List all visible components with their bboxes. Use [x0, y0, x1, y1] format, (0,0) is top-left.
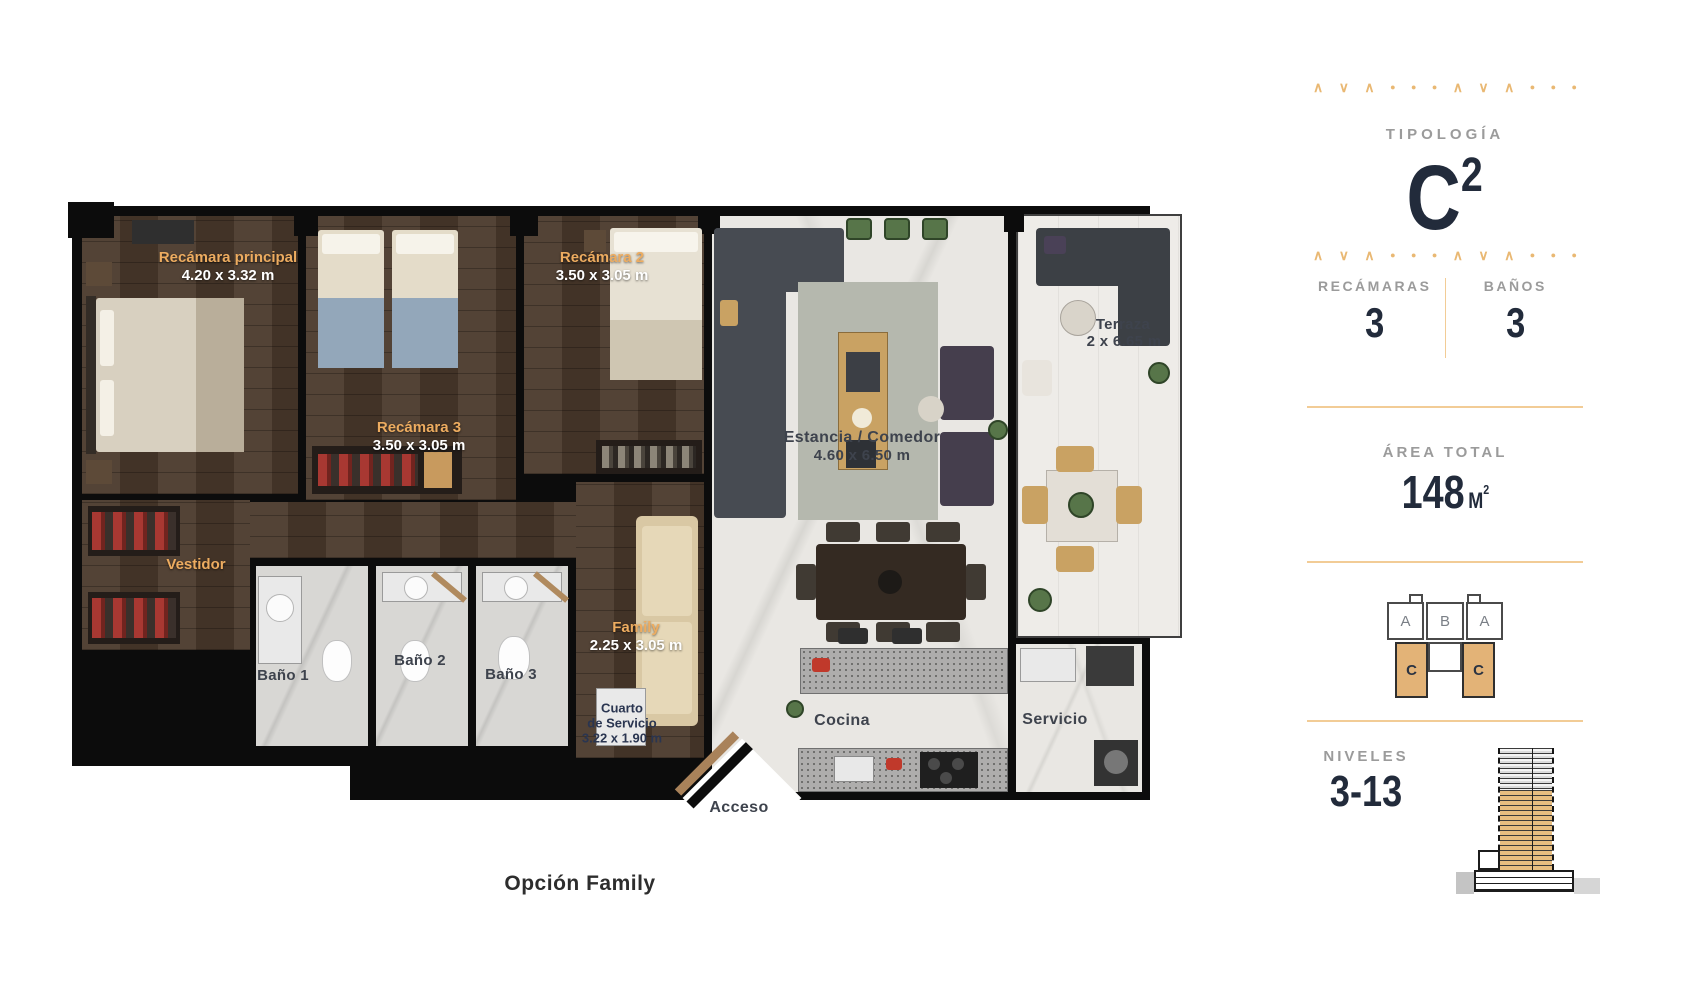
ornament-chevron: ∧ [1453, 80, 1463, 94]
bar-stool [838, 628, 868, 644]
ornament-dot: ● [1530, 248, 1535, 262]
sink [504, 576, 528, 600]
area-label: ÁREA TOTAL [1305, 444, 1585, 461]
label-bedroom-2-dims: 3.50 x 3.05 m [556, 267, 649, 285]
dining-chair [796, 564, 816, 600]
ornament-row: ∧∨∧●●●∧∨∧●●● [1313, 248, 1577, 262]
ornament-chevron: ∧ [1504, 80, 1514, 94]
tipologia-letter: C [1407, 147, 1461, 249]
area-value: 148 M2 [1305, 470, 1585, 514]
stat-label: BAÑOS [1446, 278, 1586, 294]
washer-door [1104, 750, 1128, 774]
room-dims: 4.60 x 6.50 m [814, 447, 910, 464]
stat-value: 3 [1305, 302, 1445, 344]
label-acceso: Acceso [709, 799, 768, 817]
patio-chair [1022, 486, 1048, 524]
table-bowl [852, 408, 872, 428]
tipologia-label: TIPOLOGÍA [1305, 126, 1585, 143]
room-dims: 2 x 6.65 m [1087, 333, 1162, 350]
throw-pillow [720, 300, 738, 326]
room-name: Recámara principal [159, 249, 297, 266]
divider [1307, 561, 1583, 563]
plant [922, 218, 948, 240]
room-dims: 3.50 x 3.05 m [373, 437, 466, 454]
plant [988, 420, 1008, 440]
room-name: Baño 1 [257, 667, 309, 684]
label-bedroom-3: Recámara 3 [377, 419, 461, 437]
room-name: Recámara 2 [560, 249, 644, 266]
keyplan-unit-a1: A [1387, 602, 1424, 640]
label-master-bedroom-dims: 4.20 x 3.32 m [182, 267, 275, 285]
keyplan-unit-b: B [1426, 602, 1464, 640]
burner [928, 758, 940, 770]
divider [1307, 406, 1583, 408]
wardrobe-clothes [92, 598, 176, 638]
ornament-chevron: ∨ [1478, 80, 1488, 94]
plant [1148, 362, 1170, 384]
ornament-dot: ● [1572, 80, 1577, 94]
accent-chair [940, 346, 994, 420]
outdoor-chair [1022, 360, 1052, 396]
label-bath-2: Baño 2 [394, 652, 446, 670]
keyplan-unit-c1: C [1395, 642, 1428, 698]
unit-letter: A [1400, 613, 1410, 630]
pillow [322, 234, 380, 254]
bed-throw [196, 298, 244, 452]
room-name: Family [612, 619, 660, 636]
building-illustration [1452, 744, 1602, 900]
patio-chair [1056, 546, 1094, 572]
label-terraza: Terraza [1096, 316, 1150, 334]
unit-letter: C [1406, 662, 1417, 679]
toilet [322, 640, 352, 682]
room-dims: 4.20 x 3.32 m [182, 267, 275, 284]
label-cocina: Cocina [814, 712, 870, 730]
stat-label: RECÁMARAS [1305, 278, 1445, 294]
area-number: 148 [1401, 466, 1464, 518]
table-tray [846, 352, 880, 392]
tipologia-value: C2 [1305, 148, 1585, 238]
unit-letter: A [1479, 613, 1489, 630]
closet-shoes [602, 446, 696, 468]
cooking-pot [812, 658, 830, 672]
pillow [100, 310, 114, 366]
label-vestidor: Vestidor [166, 556, 225, 574]
ornament-dot: ● [1411, 80, 1416, 94]
divider [1307, 720, 1583, 722]
ornament-dot: ● [1551, 248, 1556, 262]
plant [884, 218, 910, 240]
plant [846, 218, 872, 240]
label-servicio: Servicio [1022, 711, 1087, 729]
bar-stool [892, 628, 922, 644]
sofa-cushion [642, 526, 692, 616]
wall-column [68, 202, 114, 238]
dresser [132, 220, 194, 244]
ornament-chevron: ∨ [1478, 248, 1488, 262]
ornament-chevron: ∧ [1504, 248, 1514, 262]
stats-row: RECÁMARAS 3 BAÑOS 3 [1305, 278, 1585, 358]
label-terraza-dims: 2 x 6.65 m [1087, 333, 1162, 351]
ornament-chevron: ∧ [1364, 80, 1374, 94]
keyplan-unit-a2: A [1466, 602, 1503, 640]
throw-pillow [1044, 236, 1066, 254]
ornament-dot: ● [1530, 80, 1535, 94]
ornament-chevron: ∧ [1313, 80, 1323, 94]
ornament-chevron: ∧ [1313, 248, 1323, 262]
side-table [918, 396, 944, 422]
ornament-dot: ● [1411, 248, 1416, 262]
keyplan-unit-c2: C [1462, 642, 1495, 698]
headboard [86, 296, 96, 454]
wardrobe-clothes [92, 512, 176, 550]
kitchen-sink [834, 756, 874, 782]
room-name: Baño 3 [485, 666, 537, 683]
closet-clothes [318, 454, 418, 486]
ornament-dot: ● [1432, 248, 1437, 262]
room-name-line2: de Servicio [582, 716, 662, 731]
plant [1028, 588, 1052, 612]
room-dims: 2.25 x 3.05 m [590, 637, 683, 654]
stat-recamaras: RECÁMARAS 3 [1305, 278, 1446, 358]
food-plate [886, 758, 902, 770]
room-name-line1: Cuarto [582, 701, 662, 716]
niveles-label: NIVELES [1305, 748, 1427, 765]
nightstand [86, 460, 112, 484]
pillow [396, 234, 454, 254]
room-name: Baño 2 [394, 652, 446, 669]
unit-letter: C [1473, 662, 1484, 679]
unit-letter: B [1440, 613, 1450, 630]
room-dims: 3.22 x 1.90 m [582, 731, 662, 746]
dining-chair [966, 564, 986, 600]
room-name: Cocina [814, 712, 870, 729]
building-ground-slab [1574, 878, 1600, 894]
ornament-chevron: ∨ [1339, 248, 1349, 262]
room-name: Terraza [1096, 316, 1150, 333]
pillow [100, 380, 114, 436]
patio-chair [1116, 486, 1142, 524]
room-name: Acceso [709, 799, 768, 816]
dining-chair [926, 622, 960, 642]
ornament-chevron: ∨ [1339, 80, 1349, 94]
niveles-value: 3-13 [1305, 771, 1427, 813]
wall-column [294, 208, 318, 236]
nightstand [86, 262, 112, 286]
label-estancia: Estancia / Comedor [784, 429, 941, 447]
ornament-dot: ● [1390, 248, 1395, 262]
plan-caption: Opción Family [504, 872, 655, 896]
building-podium [1474, 870, 1574, 892]
utility-cabinet [1086, 646, 1134, 686]
ornament-dot: ● [1390, 80, 1395, 94]
tower-upper-floors [1500, 748, 1552, 790]
room-name: Servicio [1022, 711, 1087, 728]
niveles-block: NIVELES 3-13 [1305, 748, 1427, 813]
label-cuarto-servicio: Cuarto de Servicio 3.22 x 1.90 m [582, 701, 662, 746]
tipologia-sup: 2 [1461, 149, 1483, 202]
area-unit-sup: 2 [1483, 482, 1489, 497]
building-annex [1478, 850, 1500, 870]
wall-column [510, 208, 538, 236]
accent-chair [940, 432, 994, 506]
closet-box [424, 452, 452, 488]
label-bath-3: Baño 3 [485, 666, 537, 684]
patio-chair [1056, 446, 1094, 472]
label-master-bedroom: Recámara principal [159, 249, 297, 267]
bed-blanket [392, 298, 458, 368]
info-panel: ∧∨∧●●●∧∨∧●●● TIPOLOGÍA C2 ∧∨∧●●●∧∨∧●●● R… [1305, 0, 1585, 1000]
kitchen-island [800, 648, 1008, 694]
ornament-row: ∧∨∧●●●∧∨∧●●● [1313, 80, 1577, 94]
sink [404, 576, 428, 600]
dining-chair [826, 522, 860, 542]
label-estancia-dims: 4.60 x 6.50 m [814, 447, 910, 465]
stat-value: 3 [1446, 302, 1586, 344]
building-tower [1498, 748, 1554, 870]
burner [952, 758, 964, 770]
tower-highlighted-floors [1500, 790, 1552, 870]
utility-counter [1020, 648, 1076, 682]
ornament-chevron: ∧ [1364, 248, 1374, 262]
label-bath-1: Baño 1 [257, 667, 309, 685]
stat-banos: BAÑOS 3 [1446, 278, 1586, 358]
keyplan-diagram: A B A C C [1387, 602, 1503, 702]
room-dims: 3.50 x 3.05 m [556, 267, 649, 284]
outdoor-table [1060, 300, 1096, 336]
building-ground-block [1456, 872, 1474, 894]
area-unit: M [1468, 488, 1483, 513]
ornament-dot: ● [1432, 80, 1437, 94]
ornament-chevron: ∧ [1453, 248, 1463, 262]
plant [1068, 492, 1094, 518]
room-name: Estancia / Comedor [784, 429, 941, 446]
floorplan-sheet: Recámara principal 4.20 x 3.32 m Recámar… [0, 0, 1707, 1000]
dining-chair [876, 522, 910, 542]
burner [940, 772, 952, 784]
plant [786, 700, 804, 718]
label-family: Family [612, 619, 660, 637]
dining-chair [926, 522, 960, 542]
bed-blanket [318, 298, 384, 368]
ornament-dot: ● [1551, 80, 1556, 94]
label-family-dims: 2.25 x 3.05 m [590, 637, 683, 655]
ornament-dot: ● [1572, 248, 1577, 262]
hallway [250, 502, 576, 558]
room-name: Vestidor [166, 556, 225, 573]
tower-facade-line [1532, 748, 1533, 870]
keyplan-core [1428, 642, 1462, 672]
sink [266, 594, 294, 622]
label-bedroom-2: Recámara 2 [560, 249, 644, 267]
room-name: Recámara 3 [377, 419, 461, 436]
wall-column [1004, 208, 1024, 232]
label-bedroom-3-dims: 3.50 x 3.05 m [373, 437, 466, 455]
bed-blanket [610, 320, 702, 380]
centerpiece [878, 570, 902, 594]
